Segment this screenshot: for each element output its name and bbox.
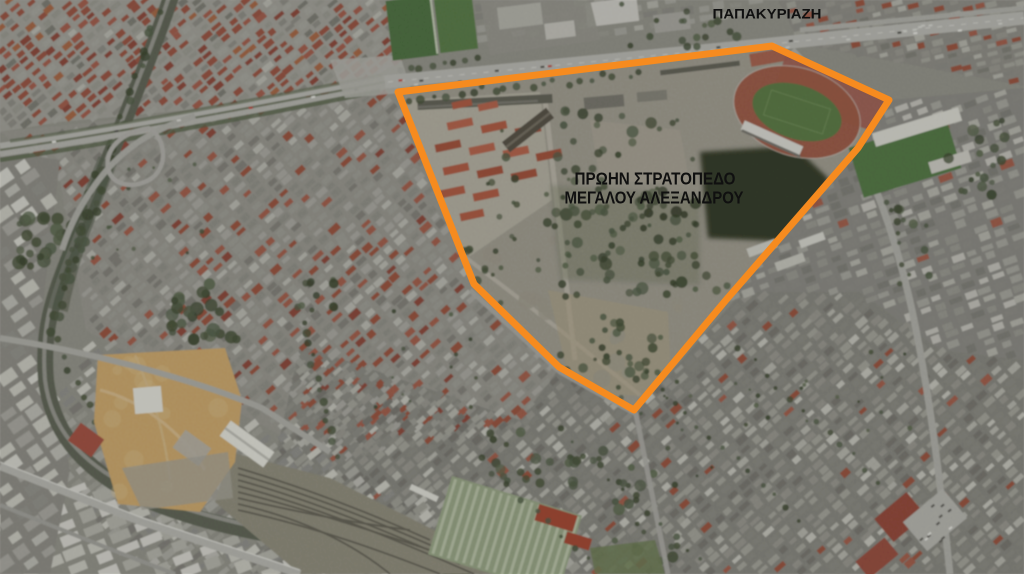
svg-text:ΠΑΠΑΚΥΡΙΑΖΗ: ΠΑΠΑΚΥΡΙΑΖΗ	[713, 6, 822, 22]
svg-text:ΠΡΩΗΝ ΣΤΡΑΤΟΠΕΔΟ: ΠΡΩΗΝ ΣΤΡΑΤΟΠΕΔΟ	[575, 169, 736, 189]
svg-text:ΜΕΓΑΛΟΥ ΑΛΕΞΑΝΔΡΟΥ: ΜΕΓΑΛΟΥ ΑΛΕΞΑΝΔΡΟΥ	[565, 188, 744, 208]
